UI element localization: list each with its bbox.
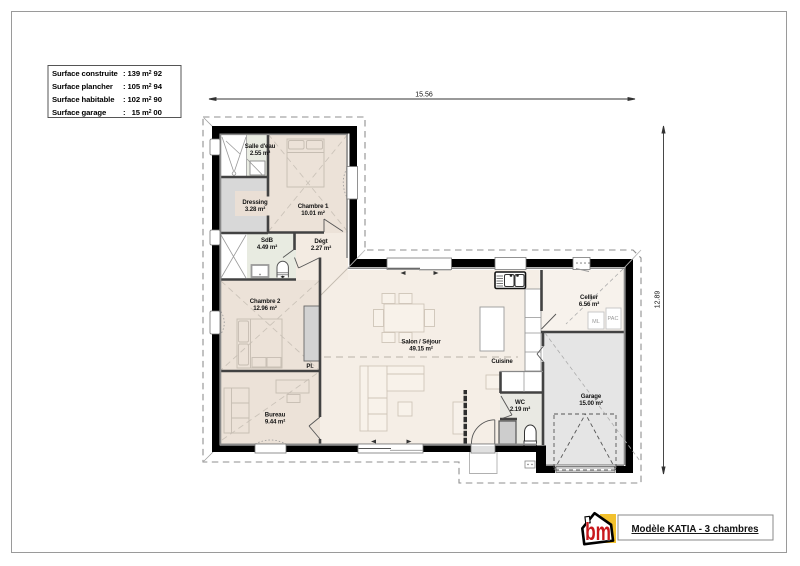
svg-text:Surface construite: Surface construite bbox=[52, 69, 119, 78]
svg-text:Garage: Garage bbox=[581, 393, 602, 400]
svg-text:: 139 m2 92: : 139 m2 92 bbox=[123, 69, 162, 78]
svg-text:6.56 m²: 6.56 m² bbox=[579, 301, 599, 308]
svg-text:Bureau: Bureau bbox=[265, 412, 286, 419]
svg-text:bm: bm bbox=[585, 518, 611, 546]
svg-text:12.96 m²: 12.96 m² bbox=[253, 305, 277, 312]
svg-text:15.56: 15.56 bbox=[415, 92, 433, 99]
svg-text:: 105 m2 94: : 105 m2 94 bbox=[123, 82, 163, 91]
svg-text:Pl.: Pl. bbox=[306, 363, 314, 370]
svg-text:Dressing: Dressing bbox=[242, 199, 268, 206]
svg-text:Salle d'eau: Salle d'eau bbox=[245, 143, 276, 150]
svg-text:12.89: 12.89 bbox=[655, 291, 662, 309]
svg-text:9.44 m²: 9.44 m² bbox=[265, 419, 285, 426]
svg-text:Dégt: Dégt bbox=[314, 238, 327, 245]
svg-text:15.00 m²: 15.00 m² bbox=[579, 400, 603, 407]
svg-text:Surface plancher: Surface plancher bbox=[52, 82, 113, 91]
svg-text:Cuisine: Cuisine bbox=[491, 358, 513, 365]
svg-text:Salon / Séjour: Salon / Séjour bbox=[401, 339, 441, 346]
svg-text:PAC: PAC bbox=[608, 316, 619, 322]
svg-text:2.19 m²: 2.19 m² bbox=[510, 406, 530, 413]
svg-text:Modèle KATIA - 3 chambres: Modèle KATIA - 3 chambres bbox=[631, 524, 758, 535]
svg-text:SdB: SdB bbox=[261, 237, 274, 244]
svg-text:Chambre 2: Chambre 2 bbox=[250, 298, 281, 305]
svg-text:WC: WC bbox=[515, 399, 526, 406]
svg-text:Chambre 1: Chambre 1 bbox=[298, 203, 329, 210]
svg-text:10.01 m²: 10.01 m² bbox=[301, 210, 325, 217]
svg-text:2.55 m²: 2.55 m² bbox=[250, 150, 270, 157]
svg-text:: 102 m2 90: : 102 m2 90 bbox=[123, 95, 162, 104]
svg-text:3.28 m²: 3.28 m² bbox=[245, 206, 265, 213]
svg-text:Surface habitable: Surface habitable bbox=[52, 95, 115, 104]
svg-text:Cellier: Cellier bbox=[580, 294, 599, 301]
svg-text:Surface garage: Surface garage bbox=[52, 108, 107, 117]
svg-text:4.49 m²: 4.49 m² bbox=[257, 244, 277, 251]
svg-text:2.27 m²: 2.27 m² bbox=[311, 245, 331, 252]
svg-text:49.15 m²: 49.15 m² bbox=[409, 346, 433, 353]
svg-text:ML: ML bbox=[592, 319, 600, 325]
svg-text:: 15 m2 00: : 15 m2 00 bbox=[123, 108, 162, 117]
